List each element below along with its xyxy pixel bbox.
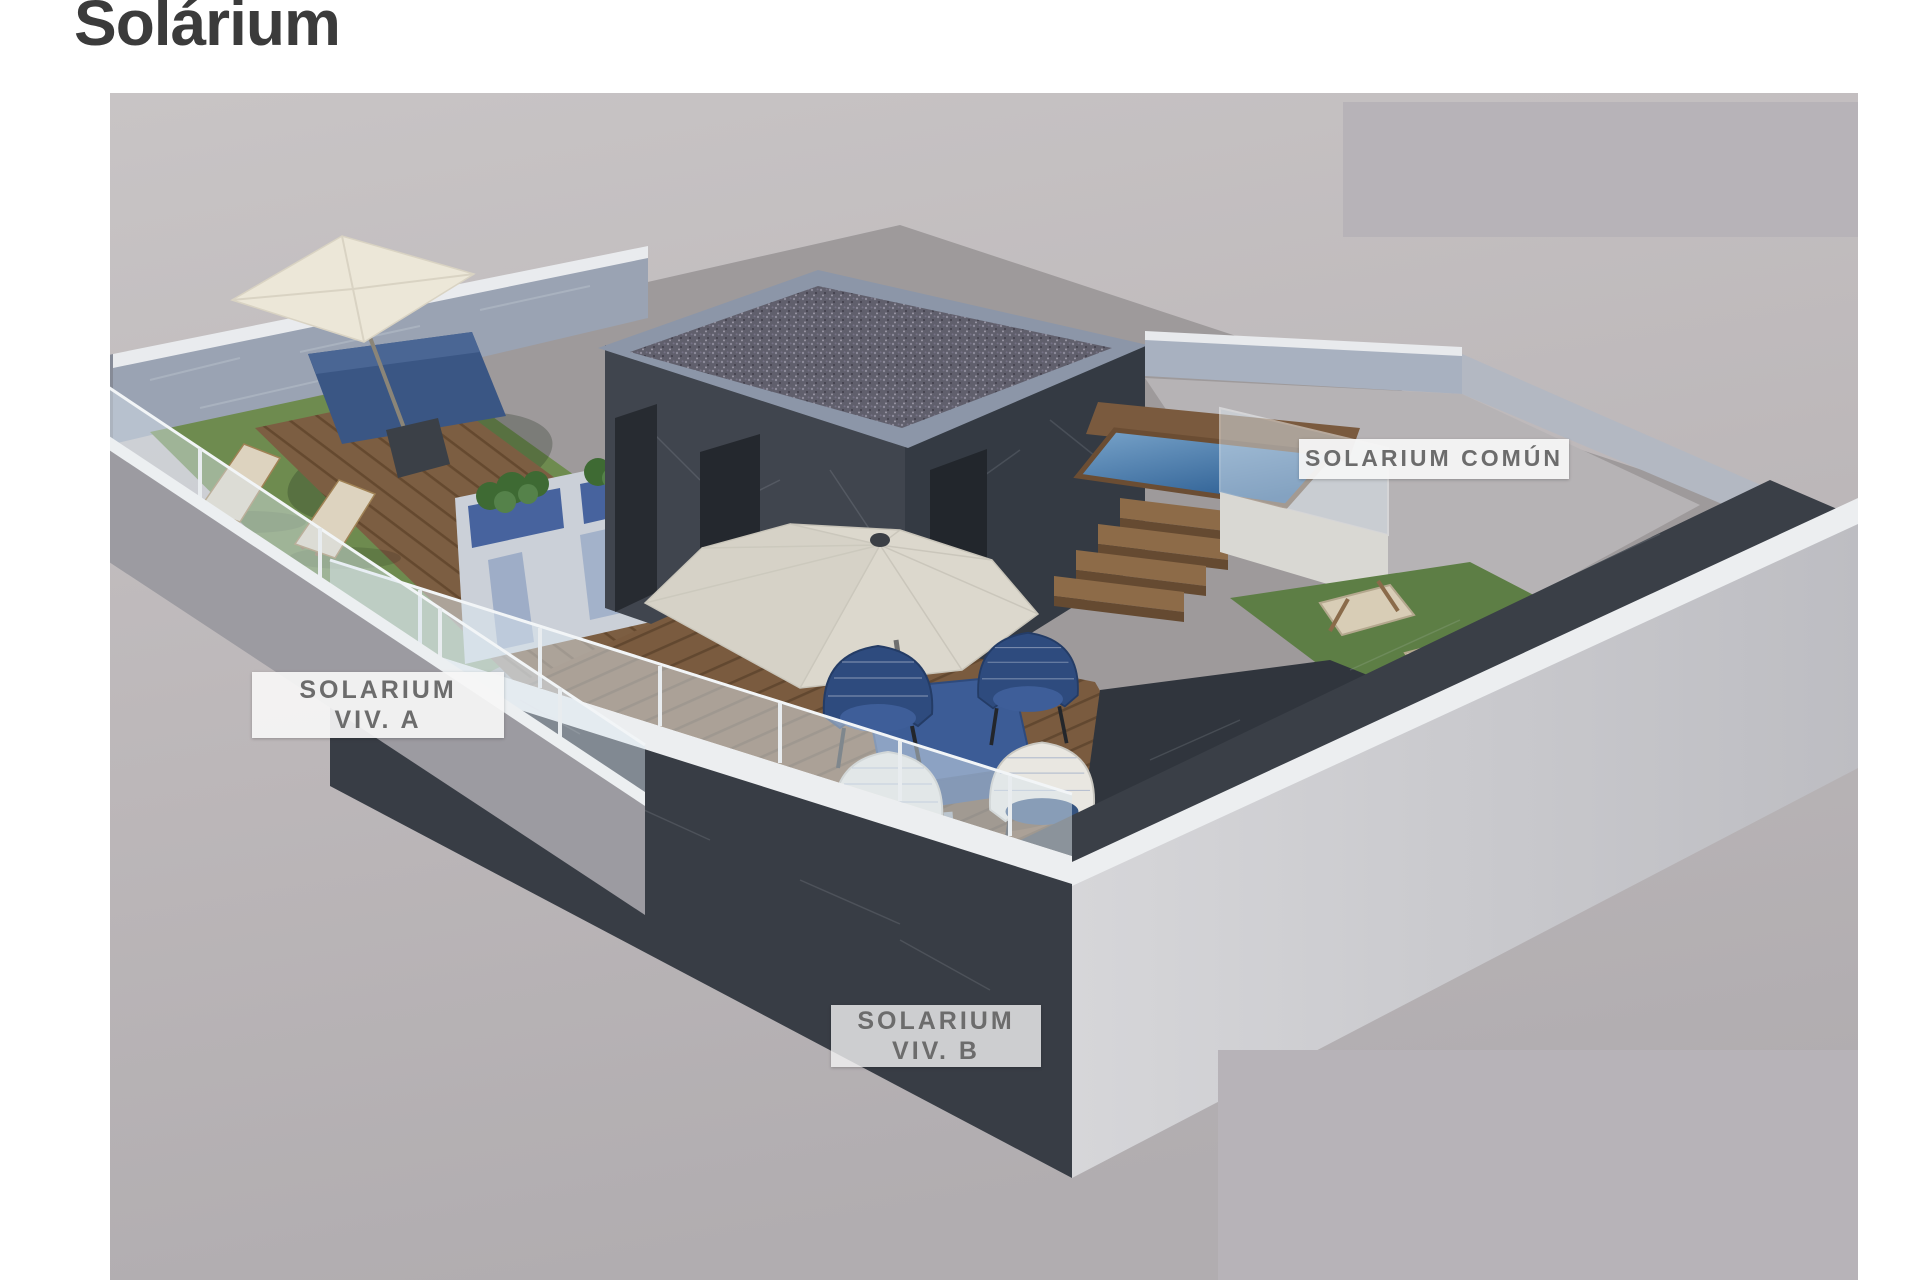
label-solarium-viv-b: SOLARIUM VIV. B (831, 1005, 1041, 1067)
umbrella-finial (870, 533, 890, 547)
label-solarium-viv-a: SOLARIUM VIV. A (252, 672, 504, 738)
page-title: Solárium (74, 0, 340, 57)
brochure-page: Solárium (0, 0, 1920, 1280)
label-text-line1: SOLARIUM (831, 1006, 1041, 1036)
label-text-line1: SOLARIUM (252, 675, 504, 705)
label-text: SOLARIUM COMÚN (1299, 445, 1569, 473)
label-text-line2: VIV. B (831, 1036, 1041, 1066)
solarium-3d-render: SOLARIUM COMÚN SOLARIUM VIV. A SOLARIUM … (110, 93, 1858, 1280)
redacted-block-top (1343, 102, 1858, 237)
building-door (615, 404, 657, 612)
label-text-line2: VIV. A (252, 705, 504, 735)
label-solarium-comun: SOLARIUM COMÚN (1299, 439, 1569, 479)
redacted-block-bottom (1218, 1050, 1858, 1280)
